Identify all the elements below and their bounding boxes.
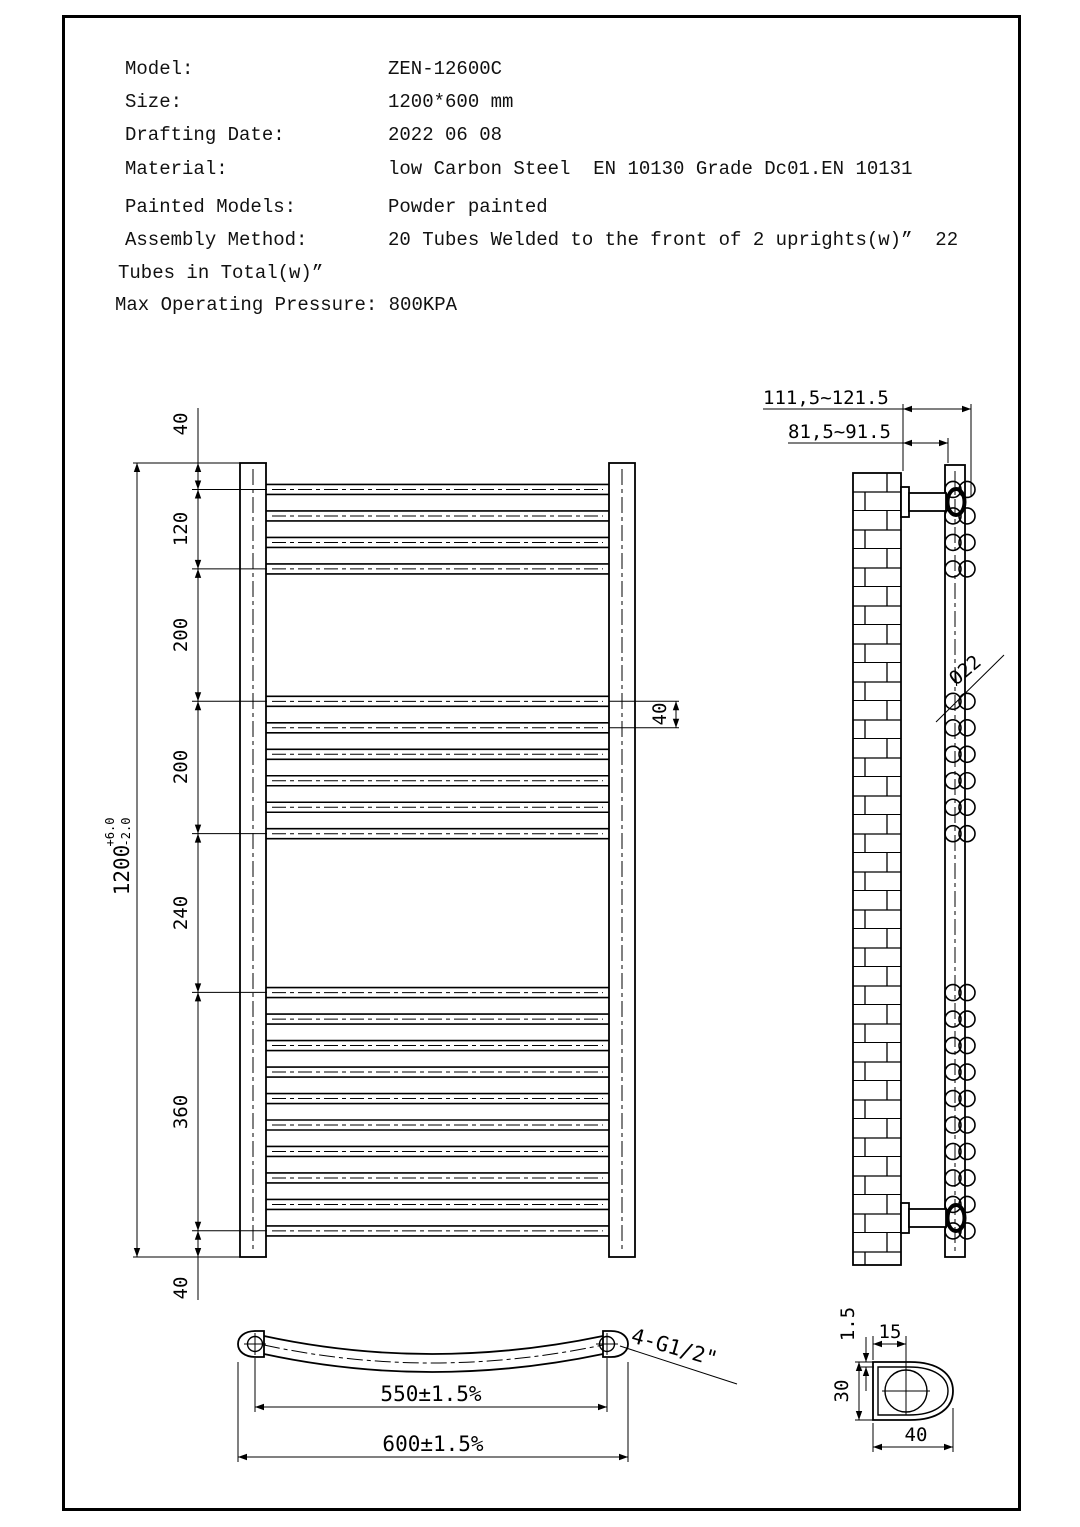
dim-arrow bbox=[195, 992, 201, 1001]
dim-arrow bbox=[195, 463, 201, 472]
detail-view: 15 1.5 30 40 bbox=[831, 1307, 953, 1452]
dim-arrow bbox=[195, 692, 201, 701]
drawing-canvas: 40 120 200 200 240 360 40 1200 +6.0 -2.0… bbox=[0, 0, 1080, 1527]
overall-tol-upper: +6.0 bbox=[103, 818, 117, 847]
dim-arrow bbox=[195, 560, 201, 569]
wall-thickness-dim: 1.5 bbox=[837, 1307, 859, 1341]
chain-dim-120: 120 bbox=[170, 512, 192, 546]
curved-tube-top-edge bbox=[264, 1336, 603, 1354]
side-view: 111,5~121.5 81,5~91.5 Ø22 bbox=[763, 387, 1004, 1265]
dim-arrow bbox=[195, 1231, 201, 1240]
dim-arrow bbox=[195, 701, 201, 710]
profile-width-dim: 40 bbox=[905, 1424, 928, 1446]
detail-dimensions: 15 1.5 30 40 bbox=[831, 1307, 953, 1452]
dim-arrow bbox=[195, 825, 201, 834]
dim-arrow bbox=[195, 490, 201, 499]
drawing-sheet: Model:ZEN-12600C Size:1200*600 mm Drafti… bbox=[0, 0, 1080, 1527]
chain-dim-200b: 200 bbox=[170, 750, 192, 784]
overall-height-dim: 1200 bbox=[110, 845, 134, 896]
wall-to-upright-dim: 81,5~91.5 bbox=[788, 421, 891, 443]
dim-arrow bbox=[195, 569, 201, 578]
chain-dim-40-top: 40 bbox=[170, 413, 192, 436]
chain-dim-240: 240 bbox=[170, 896, 192, 930]
dim-arrow bbox=[195, 834, 201, 843]
bottom-view: 550±1.5% 600±1.5% 4-G1/2" bbox=[238, 1324, 737, 1462]
dim-arrow bbox=[134, 1248, 140, 1257]
hole-offset-dim: 15 bbox=[879, 1321, 902, 1343]
dim-arrow bbox=[195, 1248, 201, 1257]
chain-dim-200a: 200 bbox=[170, 618, 192, 652]
chain-dim-360: 360 bbox=[170, 1095, 192, 1129]
tap-centers-dim: 550±1.5% bbox=[380, 1382, 482, 1406]
front-view: 40 120 200 200 240 360 40 1200 +6.0 -2.0… bbox=[103, 406, 971, 1460]
brick-wall bbox=[853, 473, 901, 1265]
dim-arrow bbox=[195, 481, 201, 490]
dim-arrow bbox=[134, 463, 140, 472]
wall-to-tube-dim: 111,5~121.5 bbox=[763, 387, 889, 409]
dim-arrow bbox=[195, 1222, 201, 1231]
tube-pitch-dim: 40 bbox=[649, 703, 671, 726]
profile-height-dim: 30 bbox=[831, 1380, 853, 1403]
dim-arrow bbox=[195, 983, 201, 992]
front-tubes bbox=[266, 484, 609, 1235]
overall-width-dim: 600±1.5% bbox=[382, 1432, 484, 1456]
overall-tol-lower: -2.0 bbox=[119, 818, 133, 847]
chain-dim-40-bottom: 40 bbox=[170, 1277, 192, 1300]
